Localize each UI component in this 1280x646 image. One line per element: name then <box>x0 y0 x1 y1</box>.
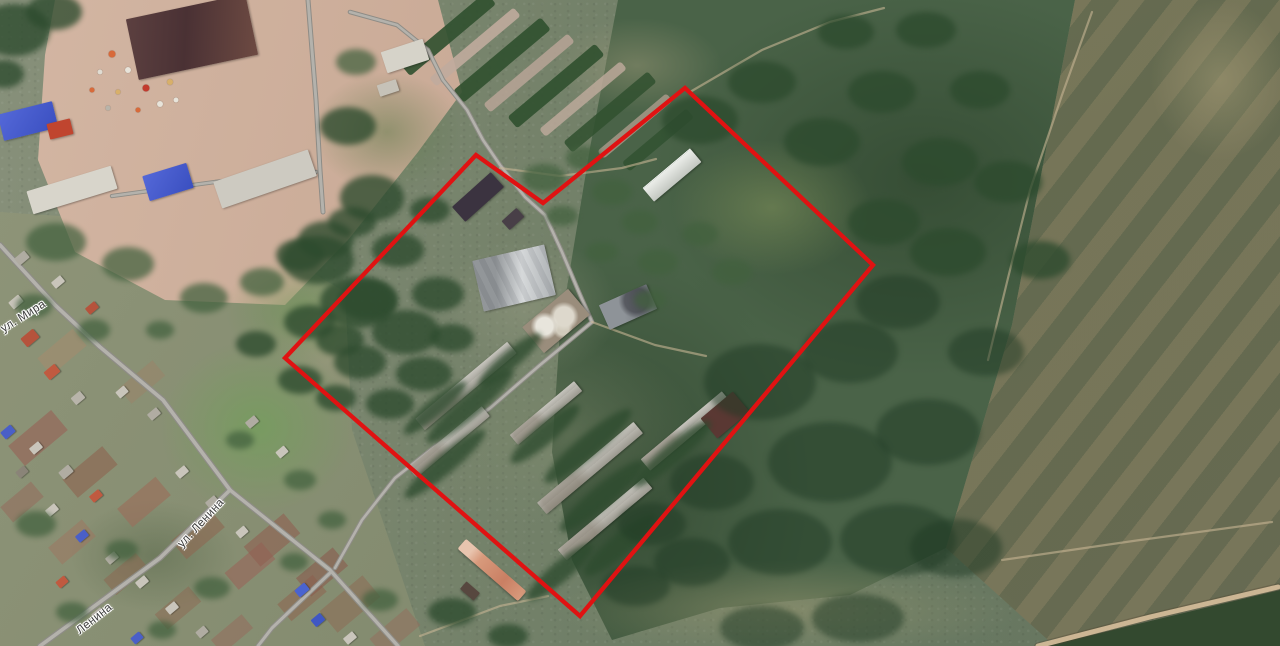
tree-cluster <box>16 511 56 537</box>
tree-cluster <box>848 199 920 245</box>
tree-cluster <box>396 357 452 391</box>
debris-item <box>157 101 163 107</box>
tree-cluster <box>634 290 666 310</box>
tree-cluster <box>768 422 892 502</box>
tree-cluster <box>896 12 956 48</box>
tree-cluster <box>284 305 336 339</box>
tree-cluster <box>662 96 738 144</box>
tree-cluster <box>336 49 376 75</box>
tree-cluster <box>948 328 1024 376</box>
roads-layer <box>0 0 1280 646</box>
tree-cluster <box>320 107 376 145</box>
tree-cluster <box>974 161 1042 203</box>
tree-cluster <box>240 268 284 296</box>
tree-cluster <box>180 283 228 313</box>
tree-cluster <box>902 138 978 186</box>
tree-cluster <box>876 399 980 465</box>
tree-cluster <box>106 540 138 560</box>
tree-cluster <box>704 344 816 420</box>
tree-cluster <box>146 321 174 339</box>
tree-cluster <box>728 509 832 575</box>
tree-cluster <box>26 223 86 261</box>
debris-item <box>136 108 141 113</box>
tree-cluster <box>728 61 796 103</box>
tree-cluster <box>618 503 686 545</box>
satellite-map[interactable]: ул. Мира ул. Ленина Ленина <box>0 0 1280 646</box>
tree-cluster <box>622 210 658 234</box>
tree-cluster <box>372 310 440 354</box>
map-features-layer <box>0 0 1280 646</box>
road <box>308 0 323 212</box>
tree-cluster <box>102 247 154 281</box>
tree-cluster <box>148 621 176 639</box>
tree-cluster <box>316 385 356 411</box>
tree-cluster <box>318 511 346 529</box>
tree-cluster <box>488 624 528 646</box>
tree-cluster <box>566 146 602 170</box>
road <box>1038 587 1278 646</box>
tree-cluster <box>720 606 804 646</box>
tree-cluster <box>910 228 986 276</box>
tree-cluster <box>602 566 670 606</box>
tree-cluster <box>278 366 322 394</box>
tree-cluster <box>522 164 566 192</box>
debris-item <box>98 70 103 75</box>
tree-cluster <box>412 277 464 311</box>
tree-cluster <box>366 389 414 419</box>
debris-item <box>116 90 121 95</box>
tree-cluster <box>78 319 110 341</box>
tree-cluster <box>682 222 718 246</box>
tree-cluster <box>280 553 308 571</box>
tree-cluster <box>430 324 474 352</box>
tree-cluster <box>950 71 1010 109</box>
tree-cluster <box>848 71 916 113</box>
tree-cluster <box>428 598 476 626</box>
tree-cluster <box>362 589 398 611</box>
tree-cluster <box>586 242 618 262</box>
debris-item <box>125 67 131 73</box>
tree-cluster <box>226 431 254 449</box>
tree-cluster <box>410 197 450 223</box>
debris-item <box>106 106 111 111</box>
tree-cluster <box>284 470 316 490</box>
debris-item <box>90 88 95 93</box>
road <box>1002 522 1272 560</box>
tree-cluster <box>372 233 424 267</box>
tree-cluster <box>670 454 754 510</box>
tree-cluster <box>334 345 386 379</box>
tree-cluster <box>1010 241 1070 279</box>
tree-cluster <box>812 594 904 642</box>
tree-cluster <box>592 179 632 205</box>
debris-item <box>167 79 173 85</box>
tree-cluster <box>856 275 940 329</box>
tree-cluster <box>194 577 230 599</box>
tree-cluster <box>546 206 578 226</box>
tree-cluster <box>638 249 678 275</box>
tree-cluster <box>784 118 860 166</box>
tree-cluster <box>802 321 898 383</box>
tree-cluster <box>712 259 752 285</box>
debris-item <box>143 85 150 92</box>
tree-cluster <box>910 519 1002 577</box>
debris-item <box>109 51 116 58</box>
tree-cluster <box>818 15 874 49</box>
tree-cluster <box>328 207 376 237</box>
debris-item <box>174 98 179 103</box>
tree-cluster <box>236 331 276 357</box>
